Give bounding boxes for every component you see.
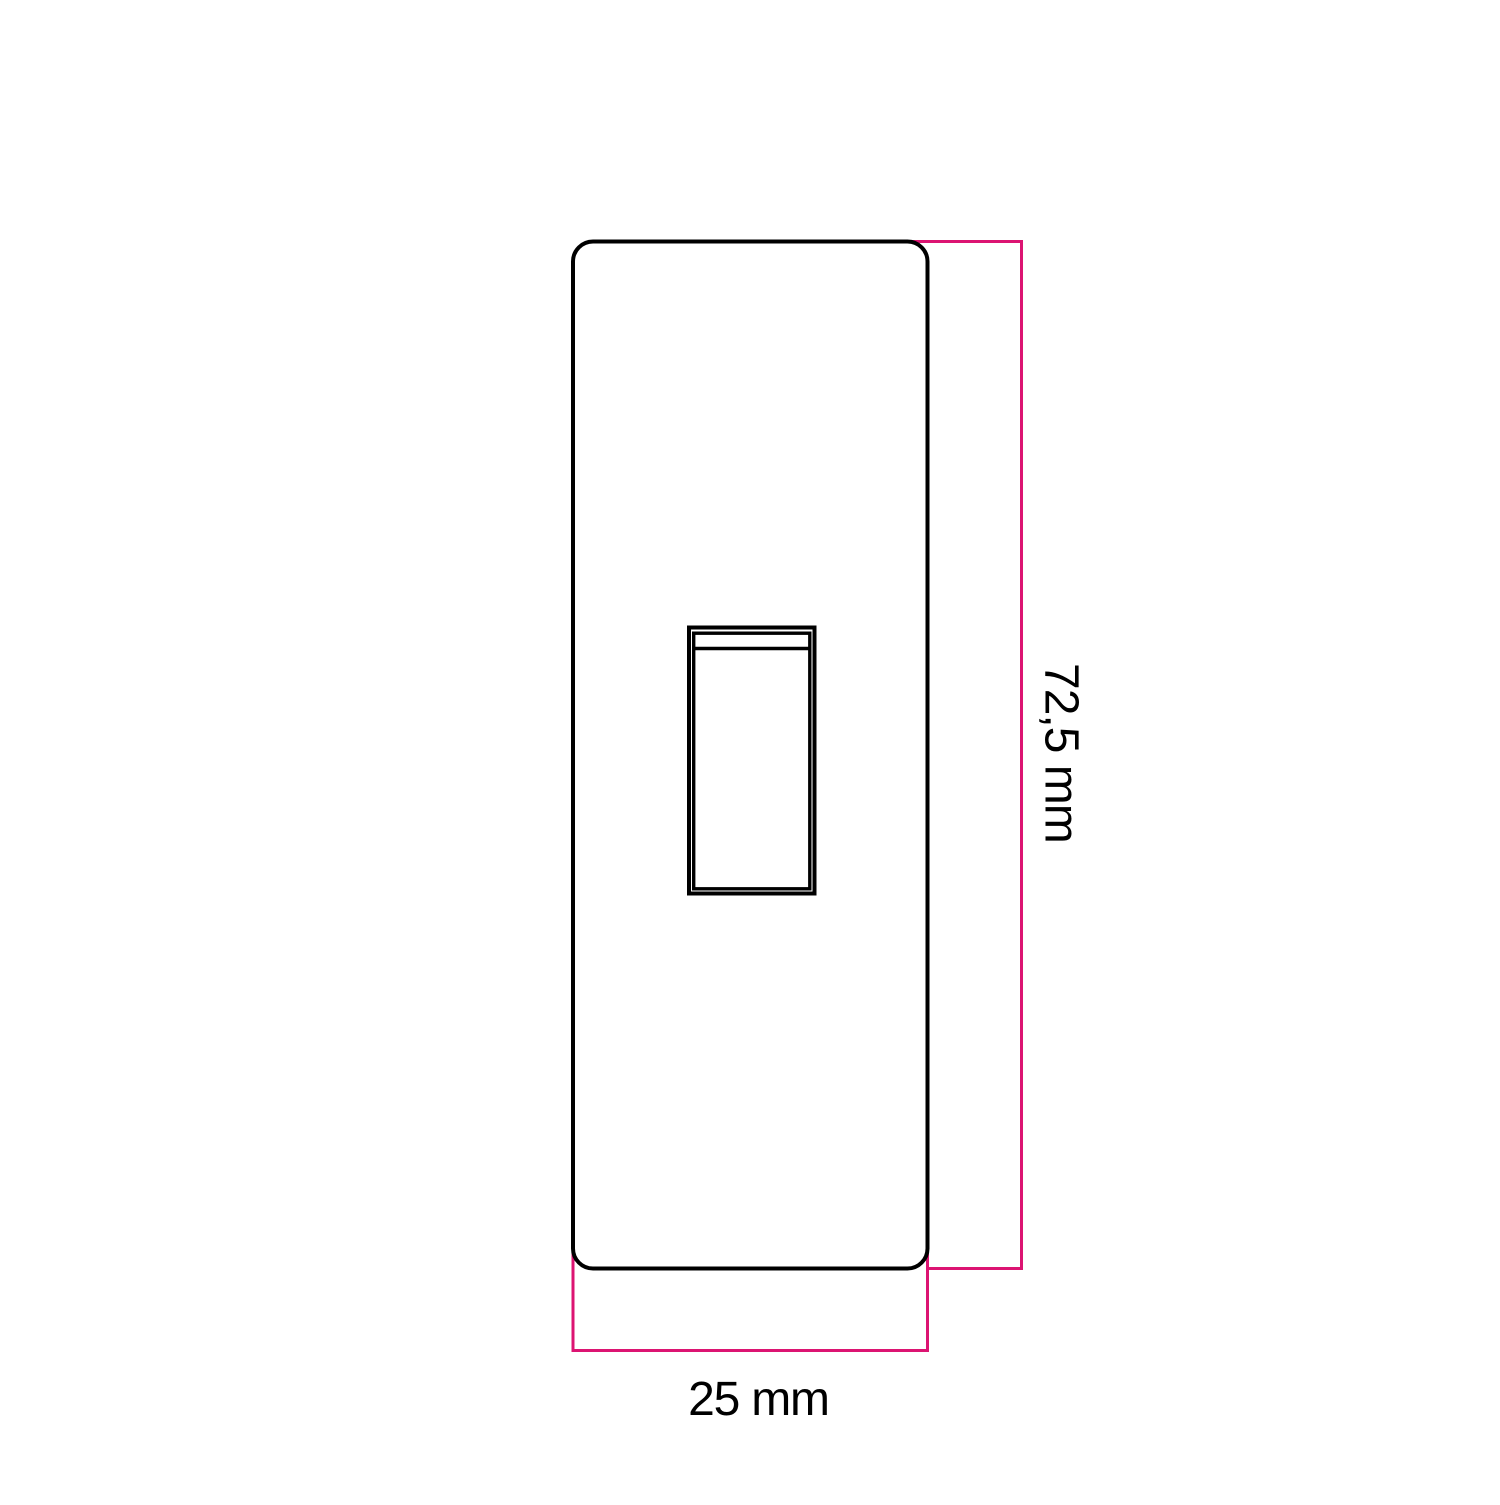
svg-text:25 mm: 25 mm	[688, 1373, 829, 1426]
svg-text:72,5 mm: 72,5 mm	[1035, 663, 1088, 843]
